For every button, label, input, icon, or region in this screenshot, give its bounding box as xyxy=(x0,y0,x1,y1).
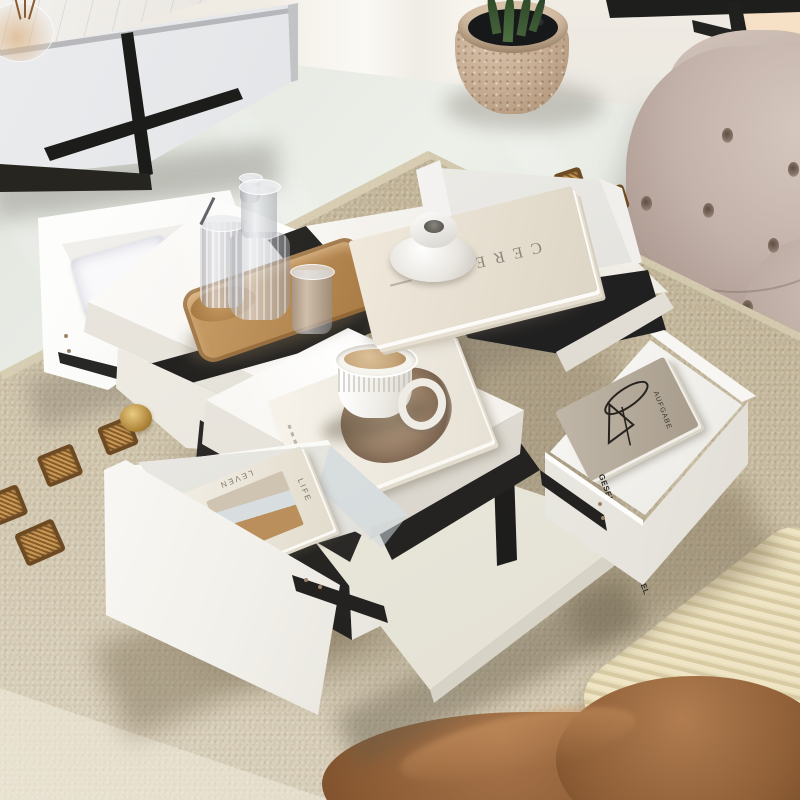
vase-opening xyxy=(424,220,444,233)
latte-coffee xyxy=(344,349,406,369)
magazine-word-side: LIFE xyxy=(296,477,314,503)
rail-screw xyxy=(598,502,602,506)
living-room-product-photo: GESELL- SCHAFT EINE INSEL AUFGABE CEREAL xyxy=(0,0,800,800)
rail-screw xyxy=(67,349,71,353)
sofa-tuft-button xyxy=(722,128,733,143)
book-cover-dash xyxy=(390,279,412,286)
rail-screw xyxy=(304,578,308,582)
rail-screw xyxy=(64,334,68,338)
carafe-ribs xyxy=(228,232,290,320)
brass-dish xyxy=(120,404,152,432)
rail-screw xyxy=(318,585,322,589)
carafe-rim xyxy=(239,179,281,195)
rail-screw xyxy=(601,516,605,520)
dried-stem xyxy=(24,0,26,18)
glass-rim xyxy=(290,264,335,280)
